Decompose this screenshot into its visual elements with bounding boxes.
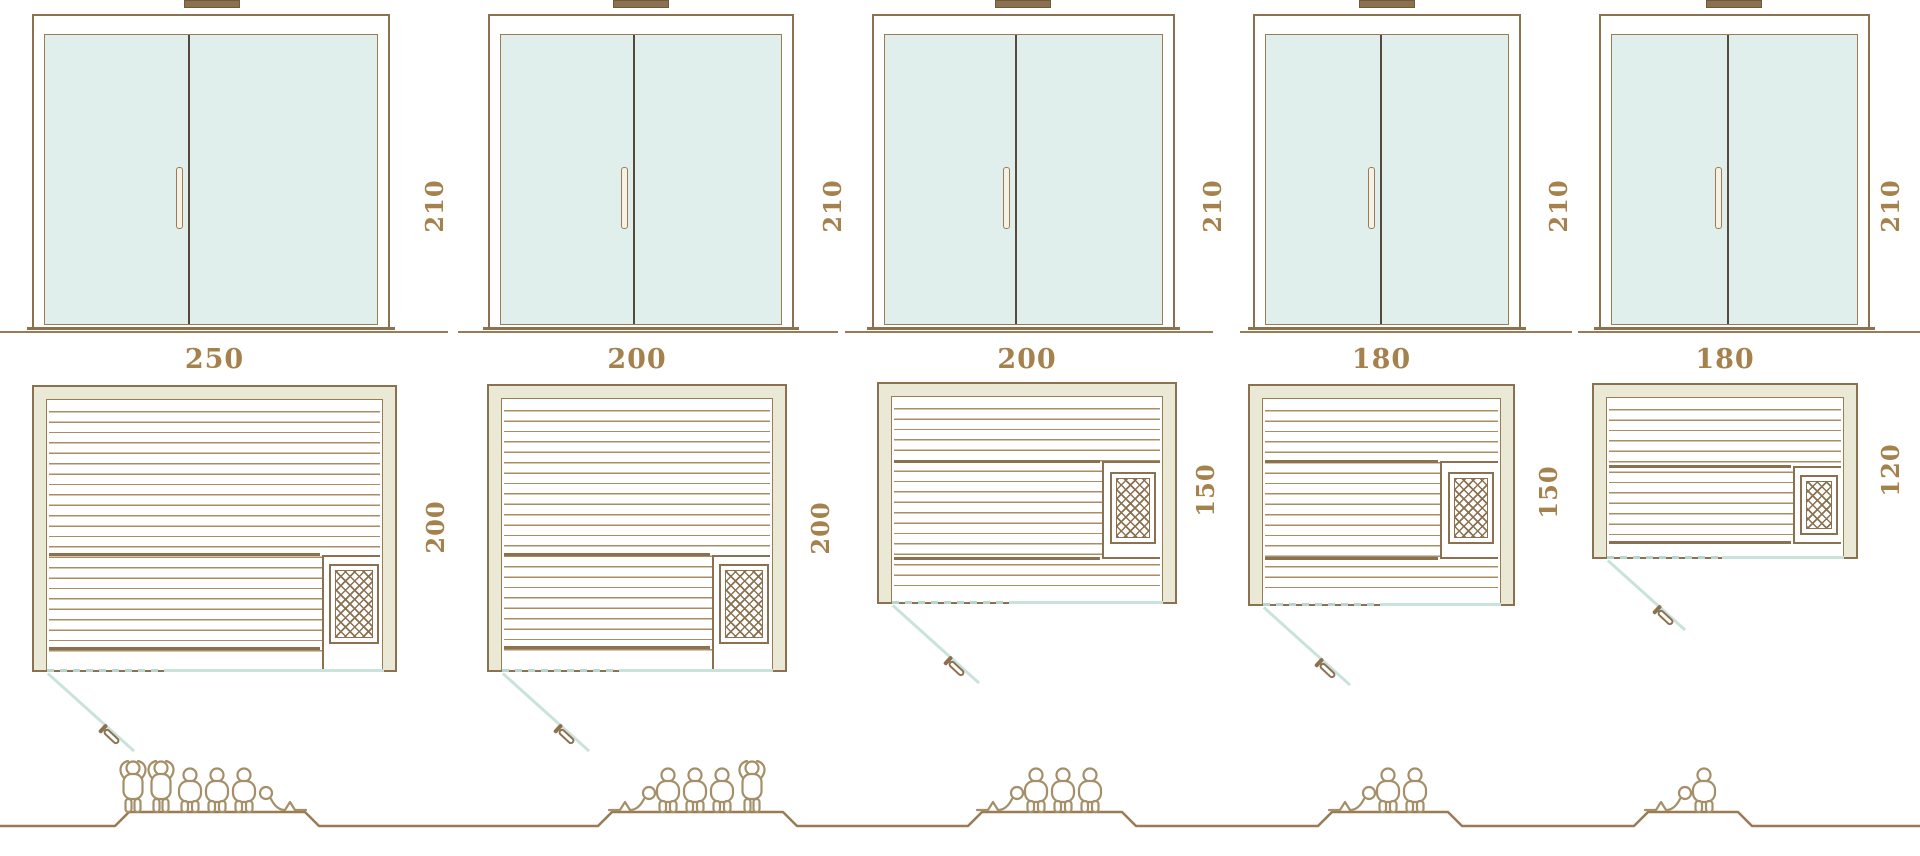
heater-icon bbox=[1110, 472, 1156, 544]
seated-person-icon bbox=[179, 769, 201, 813]
capacity-pictogram-row bbox=[0, 736, 1920, 856]
ground-line bbox=[845, 331, 1213, 333]
floor-plan bbox=[487, 384, 787, 672]
front-elevation bbox=[488, 14, 794, 330]
heater-area bbox=[1793, 466, 1841, 544]
glass-door-panel bbox=[44, 34, 378, 325]
door-divider bbox=[1727, 35, 1729, 324]
floor-plan bbox=[1248, 384, 1515, 606]
heater-hatch bbox=[1116, 478, 1150, 538]
glass-front-line bbox=[164, 669, 384, 672]
seated-person-icon bbox=[1404, 769, 1426, 813]
door-swing-line bbox=[1607, 559, 1686, 630]
heater-area bbox=[1440, 461, 1498, 559]
door-handle-icon bbox=[1715, 167, 1722, 229]
floor-plan bbox=[1592, 383, 1858, 559]
depth-dimension-label: 150 bbox=[1192, 460, 1218, 520]
standing-person-icon bbox=[121, 761, 146, 812]
ground-line bbox=[0, 331, 448, 333]
bench-edge-line bbox=[894, 557, 1100, 560]
seated-person-icon bbox=[1377, 769, 1399, 813]
door-divider bbox=[1380, 35, 1382, 324]
base-sill bbox=[27, 327, 395, 330]
sauna-comparison-diagram: 210 250 200 bbox=[0, 0, 1920, 856]
height-dimension-label: 210 bbox=[421, 176, 447, 236]
base-sill bbox=[867, 327, 1180, 330]
roof-vent-icon bbox=[613, 0, 669, 8]
bench-edge-line bbox=[894, 460, 1100, 463]
bench-edge-line bbox=[1265, 557, 1438, 560]
width-dimension-label: 180 bbox=[1592, 345, 1858, 373]
roof-vent-icon bbox=[1359, 0, 1415, 8]
seated-person-icon bbox=[657, 769, 679, 813]
seated-person-icon bbox=[1693, 769, 1715, 813]
plan-interior bbox=[1262, 398, 1501, 604]
seated-person-icon bbox=[1025, 769, 1047, 813]
heater-hatch bbox=[335, 570, 373, 638]
door-divider bbox=[188, 35, 190, 324]
bench-edge-line bbox=[49, 647, 320, 650]
plan-interior bbox=[891, 396, 1163, 602]
glass-front-line bbox=[1722, 556, 1844, 559]
heater-area bbox=[1102, 461, 1160, 559]
door-handle-icon bbox=[1003, 167, 1010, 229]
ground-line bbox=[458, 331, 838, 333]
seated-person-icon bbox=[206, 769, 228, 813]
door-opening-dashed-line bbox=[47, 669, 164, 672]
bench-edge-line bbox=[1609, 541, 1791, 544]
people-layer bbox=[121, 761, 1715, 812]
depth-dimension-label: 120 bbox=[1877, 442, 1903, 498]
base-sill bbox=[483, 327, 799, 330]
plan-interior bbox=[501, 398, 773, 670]
glass-front-line bbox=[1009, 601, 1163, 604]
heater-icon bbox=[719, 564, 769, 644]
depth-dimension-label: 150 bbox=[1535, 462, 1561, 522]
floor-plan bbox=[32, 385, 397, 672]
door-divider bbox=[1015, 35, 1017, 324]
base-sill bbox=[1594, 327, 1875, 330]
glass-front-line bbox=[619, 669, 773, 672]
bench-edge-line bbox=[1609, 465, 1791, 468]
heater-icon bbox=[1800, 475, 1838, 535]
seated-person-icon bbox=[1052, 769, 1074, 813]
height-dimension-label: 210 bbox=[1199, 176, 1225, 236]
door-handle-icon bbox=[1368, 167, 1375, 229]
front-elevation bbox=[32, 14, 390, 330]
seated-person-icon bbox=[1079, 769, 1101, 813]
bench-edge-line bbox=[504, 553, 710, 556]
standing-person-icon bbox=[740, 761, 765, 812]
roof-vent-icon bbox=[1706, 0, 1762, 8]
plan-interior bbox=[1606, 397, 1844, 557]
width-dimension-label: 250 bbox=[32, 345, 397, 373]
height-dimension-label: 210 bbox=[819, 176, 845, 236]
glass-front-line bbox=[1380, 603, 1501, 606]
heater-hatch bbox=[1806, 481, 1832, 529]
heater-hatch bbox=[725, 570, 763, 638]
reclining-person-icon bbox=[1645, 787, 1691, 810]
height-dimension-label: 210 bbox=[1545, 176, 1571, 236]
door-opening-dashed-line bbox=[892, 601, 1009, 604]
width-dimension-label: 200 bbox=[877, 345, 1177, 373]
door-handle-icon bbox=[176, 167, 183, 229]
glass-door-panel bbox=[1611, 34, 1858, 325]
glass-door-panel bbox=[884, 34, 1163, 325]
glass-door-panel bbox=[1265, 34, 1509, 325]
seated-person-icon bbox=[684, 769, 706, 813]
reclining-person-icon bbox=[260, 787, 306, 810]
reclining-person-icon bbox=[609, 787, 655, 810]
width-dimension-label: 180 bbox=[1248, 345, 1515, 373]
front-elevation bbox=[1599, 14, 1870, 330]
door-opening-dashed-line bbox=[502, 669, 619, 672]
base-sill bbox=[1248, 327, 1526, 330]
standing-person-icon bbox=[149, 761, 174, 812]
seated-person-icon bbox=[233, 769, 255, 813]
heater-area bbox=[322, 555, 380, 670]
floor-plan bbox=[877, 382, 1177, 604]
reclining-person-icon bbox=[1329, 787, 1375, 810]
door-swing-line bbox=[892, 604, 980, 683]
bench-edge-line bbox=[1265, 460, 1438, 463]
ground-line bbox=[1240, 331, 1572, 333]
heater-icon bbox=[329, 564, 379, 644]
door-swing-line bbox=[1263, 606, 1351, 685]
door-handle-icon bbox=[621, 167, 628, 229]
plan-interior bbox=[46, 399, 383, 670]
ground-profile-line bbox=[0, 812, 1920, 826]
heater-icon bbox=[1448, 472, 1494, 544]
door-divider bbox=[633, 35, 635, 324]
front-elevation bbox=[1253, 14, 1521, 330]
bench-edge-line bbox=[504, 646, 710, 649]
seated-person-icon bbox=[711, 769, 733, 813]
depth-dimension-label: 200 bbox=[807, 498, 833, 558]
roof-vent-icon bbox=[184, 0, 240, 8]
front-elevation bbox=[872, 14, 1175, 330]
roof-vent-icon bbox=[995, 0, 1051, 8]
bench-edge-line bbox=[49, 553, 320, 556]
door-opening-dashed-line bbox=[1263, 603, 1380, 606]
glass-door-panel bbox=[500, 34, 782, 325]
door-opening-dashed-line bbox=[1607, 556, 1720, 559]
heater-hatch bbox=[1454, 478, 1488, 538]
depth-dimension-label: 200 bbox=[422, 497, 448, 557]
height-dimension-label: 210 bbox=[1877, 178, 1903, 234]
width-dimension-label: 200 bbox=[487, 345, 787, 373]
heater-area bbox=[712, 555, 770, 670]
ground-line bbox=[1578, 331, 1920, 333]
reclining-person-icon bbox=[977, 787, 1023, 810]
